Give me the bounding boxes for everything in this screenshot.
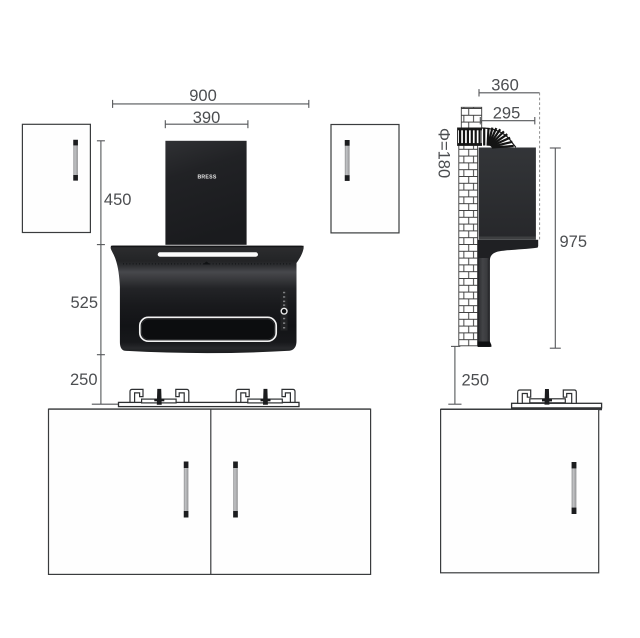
svg-text:360: 360 — [491, 76, 519, 94]
svg-text:975: 975 — [560, 233, 588, 251]
svg-text:250: 250 — [70, 371, 98, 389]
svg-text:525: 525 — [70, 294, 98, 312]
svg-text:BRESS: BRESS — [197, 174, 216, 180]
svg-text:450: 450 — [104, 191, 132, 209]
svg-text:900: 900 — [189, 87, 217, 105]
svg-text:390: 390 — [193, 109, 221, 127]
svg-text:295: 295 — [493, 104, 521, 122]
svg-text:250: 250 — [462, 371, 490, 389]
svg-text:Φ=180: Φ=180 — [435, 128, 453, 178]
